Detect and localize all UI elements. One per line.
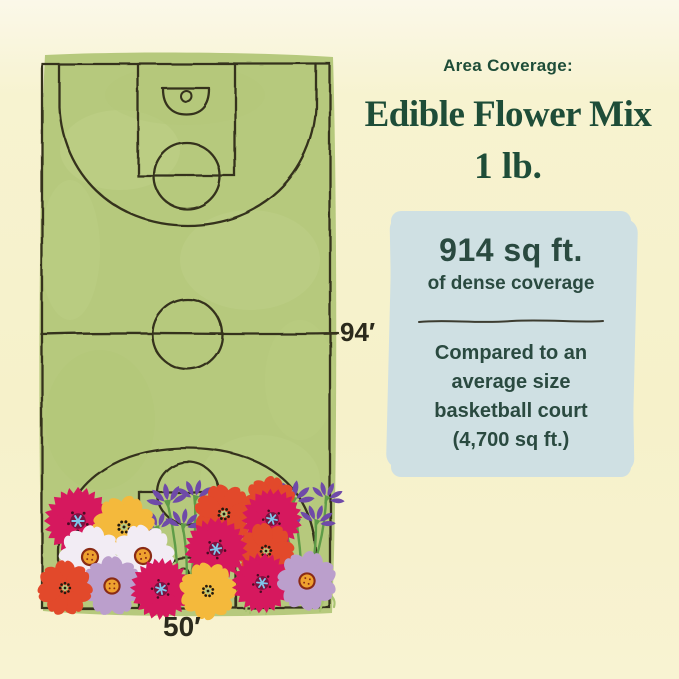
product-weight: 1 lb. (348, 141, 668, 193)
comparison-line: Compared to an (391, 339, 631, 368)
hand-drawn-divider (417, 317, 605, 325)
court-width-label: 50′ (163, 611, 201, 643)
comparison-text: Compared to an average size basketball c… (391, 339, 631, 455)
comparison-line: average size (391, 368, 631, 397)
coverage-card: 914 sq ft. of dense coverage Compared to… (391, 211, 631, 477)
coverage-value: 914 sq ft. (391, 232, 631, 269)
info-column: Area Coverage: Edible Flower Mix 1 lb. (348, 56, 668, 193)
coverage-card-body: 914 sq ft. of dense coverage Compared to… (391, 211, 631, 477)
product-title: Edible Flower Mix (348, 89, 668, 141)
comparison-line: (4,700 sq ft.) (391, 426, 631, 455)
comparison-line: basketball court (391, 397, 631, 426)
infographic-canvas: 94′ 50′ Area Coverage: Edible Flower Mix… (0, 0, 679, 679)
court-length-label: 94′ (340, 317, 375, 348)
area-coverage-kicker: Area Coverage: (348, 56, 668, 76)
coverage-caption: of dense coverage (391, 273, 631, 295)
